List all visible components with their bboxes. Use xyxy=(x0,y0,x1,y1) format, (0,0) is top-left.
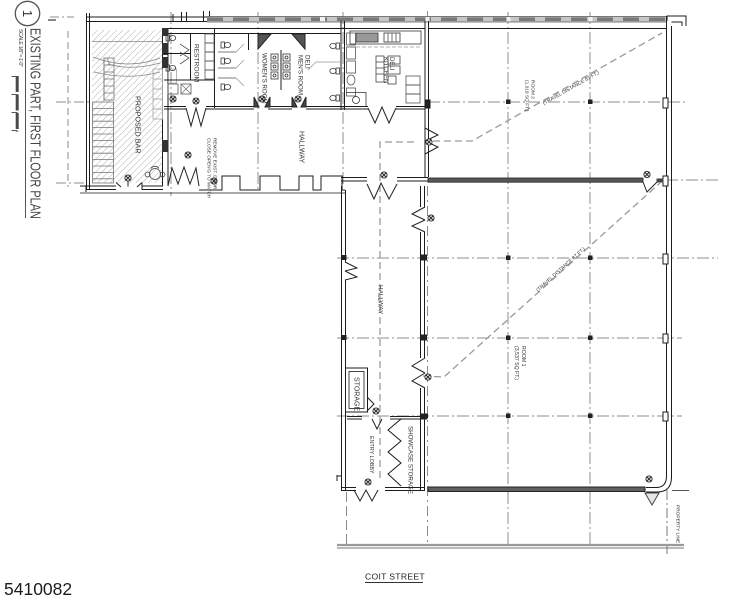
svg-text:STORAGE: STORAGE xyxy=(353,377,360,411)
svg-text:5410082: 5410082 xyxy=(4,579,72,599)
svg-text:WOMEN'S ROOM: WOMEN'S ROOM xyxy=(261,53,268,104)
svg-text:DELI: DELI xyxy=(388,57,394,71)
svg-text:EXISTING PART, FIRST FLOOR PLA: EXISTING PART, FIRST FLOOR PLAN xyxy=(27,28,44,219)
svg-text:ENTRY LOBBY: ENTRY LOBBY xyxy=(368,436,374,474)
svg-text:CLOSE OPEN'G TO MATCH: CLOSE OPEN'G TO MATCH xyxy=(207,138,212,198)
svg-text:DELI: DELI xyxy=(304,55,311,69)
svg-text:ROOM 1: ROOM 1 xyxy=(520,346,526,367)
svg-text:HALLWAY: HALLWAY xyxy=(377,285,384,315)
svg-text:REMOVE EXIST. DOOR: REMOVE EXIST. DOOR xyxy=(213,138,218,190)
svg-text:SCALE 1/8" = 1'-0": SCALE 1/8" = 1'-0" xyxy=(17,29,23,67)
svg-text:HALLWAY: HALLWAY xyxy=(298,131,305,163)
svg-text:COIT STREET: COIT STREET xyxy=(365,572,425,582)
svg-text:(3,537 SQ FT.): (3,537 SQ FT.) xyxy=(513,346,519,380)
svg-text:SHOWCASE STORAGE: SHOWCASE STORAGE xyxy=(407,426,414,494)
svg-text:PROPOSED BAR: PROPOSED BAR xyxy=(134,96,143,154)
svg-text:MEN'S ROOM: MEN'S ROOM xyxy=(297,55,304,95)
svg-text:RESTROOM: RESTROOM xyxy=(193,44,200,82)
svg-text:KITCHEN: KITCHEN xyxy=(382,57,388,83)
svg-text:1: 1 xyxy=(20,10,35,17)
